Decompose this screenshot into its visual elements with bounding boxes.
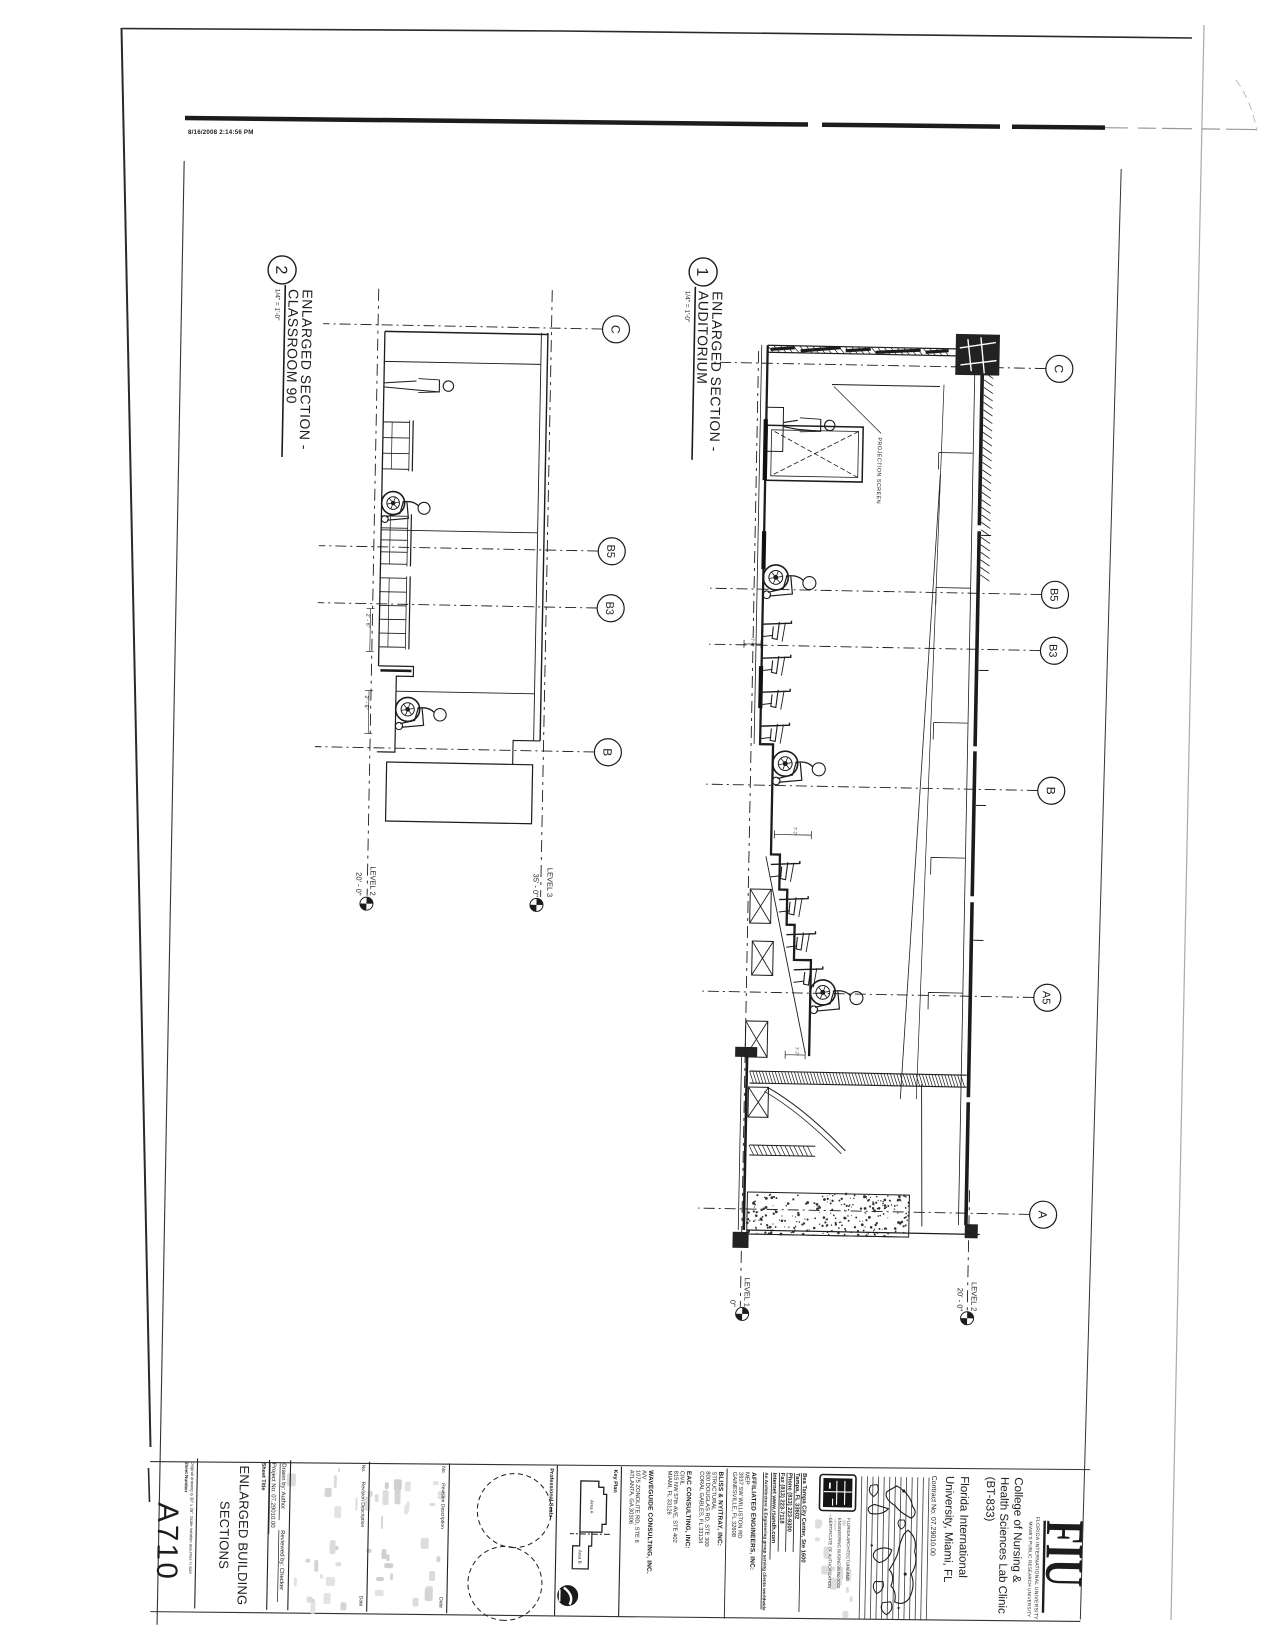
svg-text:A: A [1036,1211,1050,1219]
svg-text:(BT-833): (BT-833) [983,1477,996,1522]
svg-text:Florida International: Florida International [956,1476,970,1578]
svg-text:CLASSROOM 90: CLASSROOM 90 [284,289,302,404]
svg-text:PROJECTION SCREEN: PROJECTION SCREEN [875,437,882,504]
svg-text:Area A: Area A [589,1500,594,1514]
svg-text:B5: B5 [604,544,616,558]
svg-text:1/4" = 1'-0": 1/4" = 1'-0" [273,289,281,322]
svg-text:Revision Description: Revision Description [439,1483,446,1529]
svg-text:1/4" = 1'-0": 1/4" = 1'-0" [683,291,691,324]
svg-text:Professional Seals: Professional Seals [547,1468,554,1517]
svg-text:No.: No. [440,1466,446,1474]
svg-text:C: C [1052,364,1066,373]
svg-text:B: B [1044,787,1058,795]
svg-text:B3: B3 [603,601,615,615]
svg-text:SECTIONS: SECTIONS [216,1501,232,1569]
svg-text:Area B: Area B [577,1550,582,1564]
svg-text:Date: Date [437,1597,443,1608]
svg-text:Revision Description: Revision Description [359,1482,366,1528]
svg-text:B3: B3 [1046,644,1058,658]
svg-text:No.: No. [360,1465,366,1473]
svg-text:MIAMI, FL 33126: MIAMI, FL 33126 [665,1470,672,1514]
svg-text:University, Miami, FL: University, Miami, FL [941,1476,955,1583]
svg-text:Sheet Title: Sheet Title [260,1463,267,1491]
svg-text:0": 0" [728,1300,737,1307]
svg-text:LEVEL 2: LEVEL 2 [368,866,378,895]
svg-text:Date: Date [357,1596,363,1607]
svg-text:1: 1 [693,267,710,276]
svg-text:2' - 6": 2' - 6" [364,614,370,628]
svg-text:Key Plan: Key Plan [612,1469,618,1493]
svg-text:C: C [608,325,622,334]
svg-text:ATLANTA, GA 30306: ATLANTA, GA 30306 [627,1470,634,1524]
svg-text:35' - 0": 35' - 0" [531,874,540,898]
svg-text:8/16/2008 2:14:56 PM: 8/16/2008 2:14:56 PM [188,129,254,136]
svg-text:2: 2 [272,265,289,274]
svg-text:Sheet Number: Sheet Number [184,1461,190,1492]
svg-text:A5: A5 [1040,991,1052,1005]
svg-text:LEVEL 2: LEVEL 2 [969,1282,979,1311]
svg-text:ENLARGED BUILDING: ENLARGED BUILDING [234,1465,252,1605]
svg-text:GAINESVILLE, FL 32608: GAINESVILLE, FL 32608 [730,1472,737,1537]
svg-text:LEVEL 1: LEVEL 1 [742,1278,752,1307]
svg-text:2' - 6": 2' - 6" [363,696,369,710]
svg-text:B5: B5 [1047,588,1059,602]
svg-text:20' - 0": 20' - 0" [955,1288,964,1312]
svg-text:LEVEL 3: LEVEL 3 [545,868,555,897]
svg-text:B: B [600,748,614,756]
svg-text:A710: A710 [150,1502,185,1582]
svg-text:AUDITORIUM: AUDITORIUM [694,291,712,385]
svg-text:College of Nursing &: College of Nursing & [1010,1477,1024,1583]
svg-text:20' - 0": 20' - 0" [354,872,363,896]
